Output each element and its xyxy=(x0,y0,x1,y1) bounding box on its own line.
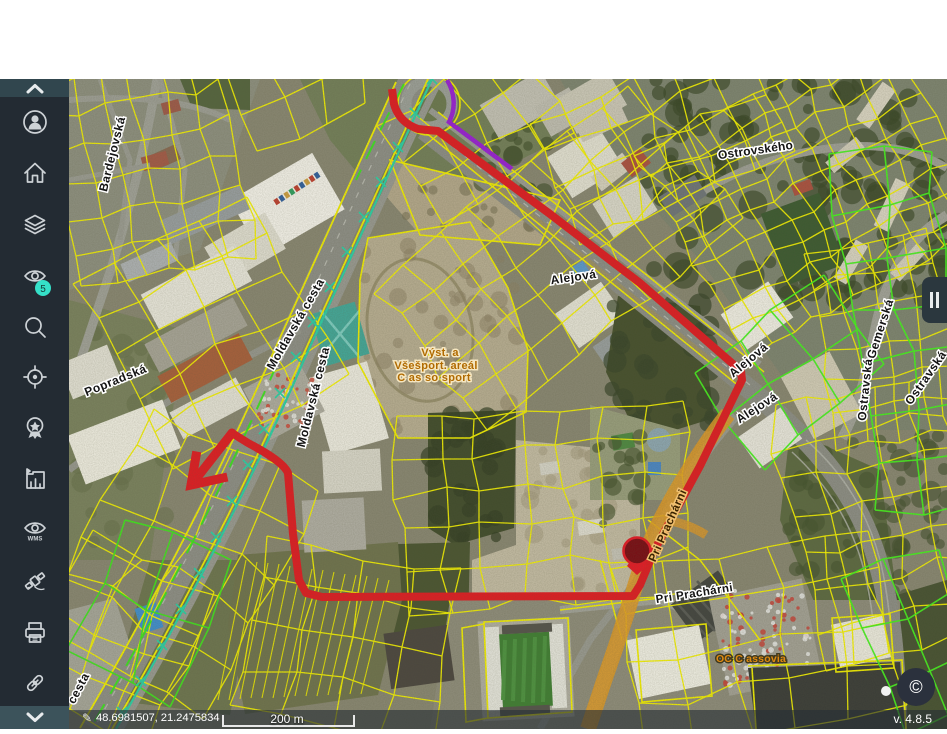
svg-text:Všešport. areál: Všešport. areál xyxy=(394,360,477,372)
svg-text:C as so sport: C as so sport xyxy=(397,372,471,384)
svg-text:Výst. a: Výst. a xyxy=(421,347,459,359)
svg-text:WMS: WMS xyxy=(28,537,43,543)
svg-text:OC C assovia: OC C assovia xyxy=(716,653,786,665)
svg-text:5: 5 xyxy=(40,284,46,295)
